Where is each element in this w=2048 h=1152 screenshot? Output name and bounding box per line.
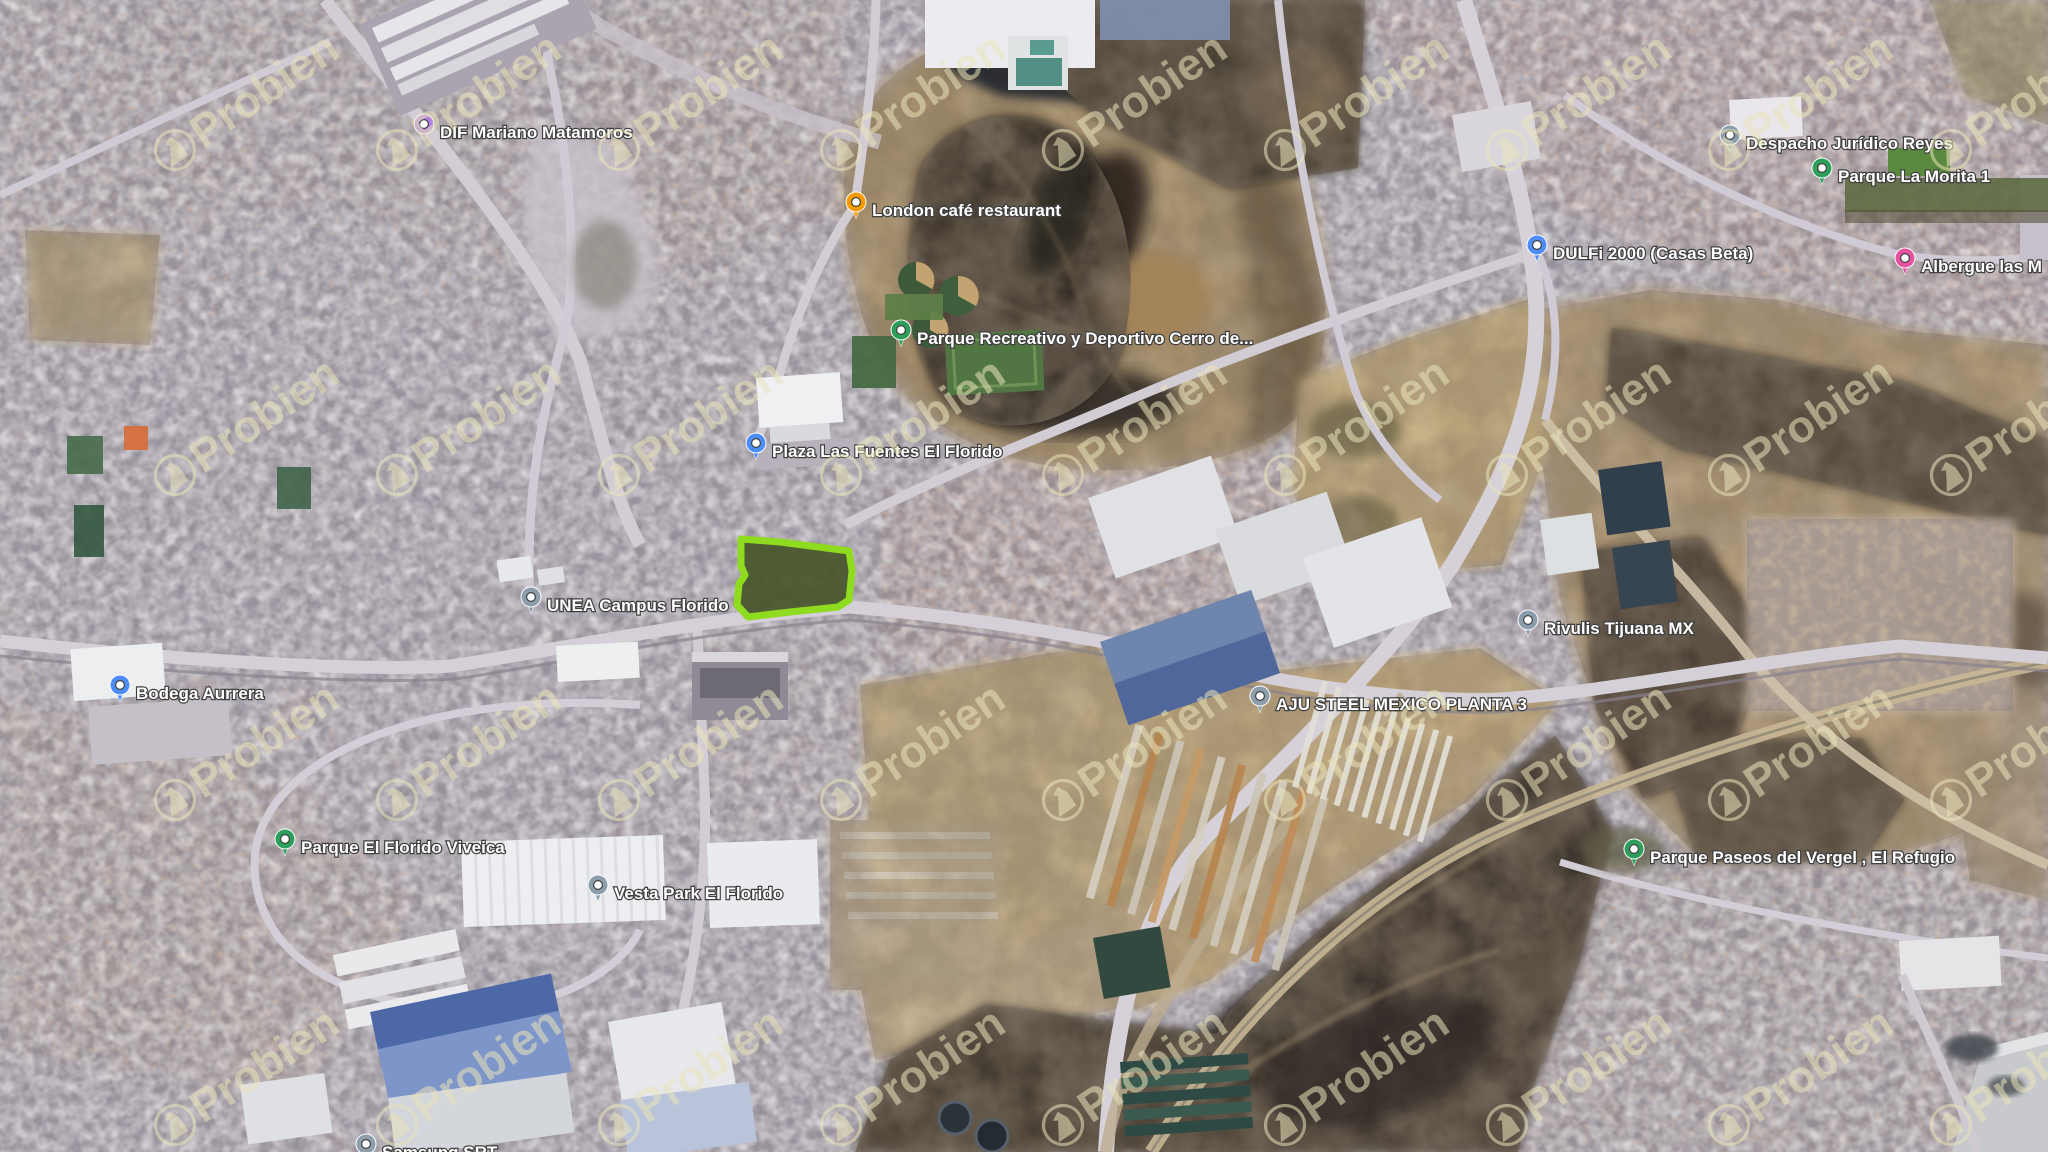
svg-text:Parque Paseos del Vergel , El: Parque Paseos del Vergel , El Refugio — [1650, 848, 1955, 867]
svg-text:Rivulis Tijuana MX: Rivulis Tijuana MX — [1544, 619, 1695, 638]
svg-text:London café restaurant: London café restaurant — [872, 201, 1061, 220]
svg-text:UNEA Campus Florido: UNEA Campus Florido — [547, 596, 729, 615]
svg-text:Bodega Aurrera: Bodega Aurrera — [136, 684, 264, 703]
svg-text:Parque El Florido Viveica: Parque El Florido Viveica — [301, 838, 505, 857]
svg-text:Parque Recreativo y Deportivo: Parque Recreativo y Deportivo Cerro de..… — [917, 329, 1253, 348]
svg-text:Parque La Morita 1: Parque La Morita 1 — [1838, 167, 1990, 186]
svg-text:DULFi 2000 (Casas Beta): DULFi 2000 (Casas Beta) — [1553, 244, 1753, 263]
svg-text:Vesta Park El Florido: Vesta Park El Florido — [614, 884, 783, 903]
svg-text:Albergue las M: Albergue las M — [1921, 257, 2042, 276]
